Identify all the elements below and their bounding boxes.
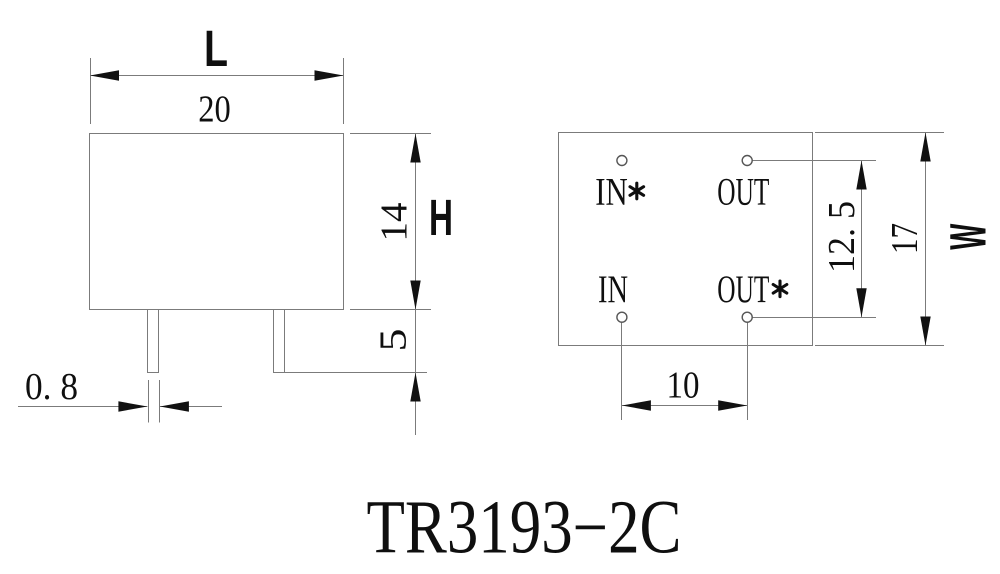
svg-text:5: 5 [373, 329, 415, 352]
svg-text:H: H [429, 189, 453, 246]
svg-text:10: 10 [667, 365, 700, 407]
svg-text:OUT: OUT [717, 268, 769, 311]
svg-text:W: W [940, 223, 997, 249]
svg-text:IN: IN [598, 268, 628, 311]
svg-text:20: 20 [198, 88, 231, 130]
svg-text:12. 5: 12. 5 [821, 201, 863, 273]
svg-text:TR3193−2C: TR3193−2C [367, 486, 682, 570]
svg-text:14: 14 [374, 203, 416, 242]
svg-text:0. 8: 0. 8 [25, 366, 78, 408]
svg-text:L: L [204, 20, 228, 77]
svg-text:IN: IN [595, 171, 628, 214]
svg-text:OUT: OUT [717, 171, 769, 214]
svg-text:17: 17 [884, 223, 926, 254]
